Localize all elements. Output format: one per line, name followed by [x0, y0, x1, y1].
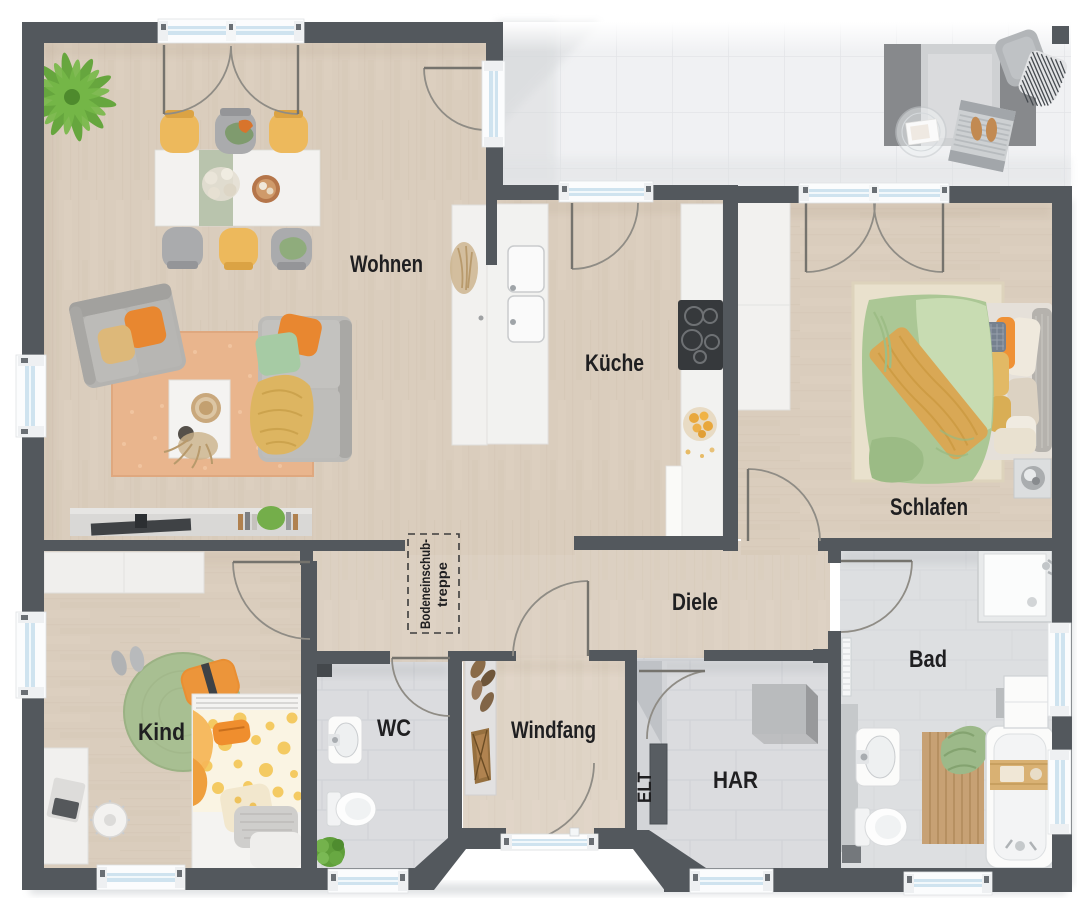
- svg-text:Küche: Küche: [585, 350, 644, 377]
- svg-text:Schlafen: Schlafen: [890, 494, 968, 521]
- svg-text:ELT: ELT: [635, 772, 656, 803]
- svg-text:HAR: HAR: [713, 767, 758, 794]
- svg-text:treppe: treppe: [435, 561, 450, 607]
- svg-text:Kind: Kind: [138, 719, 185, 746]
- svg-text:Bodeneinschub-: Bodeneinschub-: [418, 539, 433, 629]
- svg-text:Bad: Bad: [909, 646, 947, 673]
- svg-text:Windfang: Windfang: [511, 717, 596, 744]
- svg-text:WC: WC: [377, 715, 411, 742]
- svg-text:Diele: Diele: [672, 589, 718, 616]
- svg-text:Wohnen: Wohnen: [350, 251, 423, 278]
